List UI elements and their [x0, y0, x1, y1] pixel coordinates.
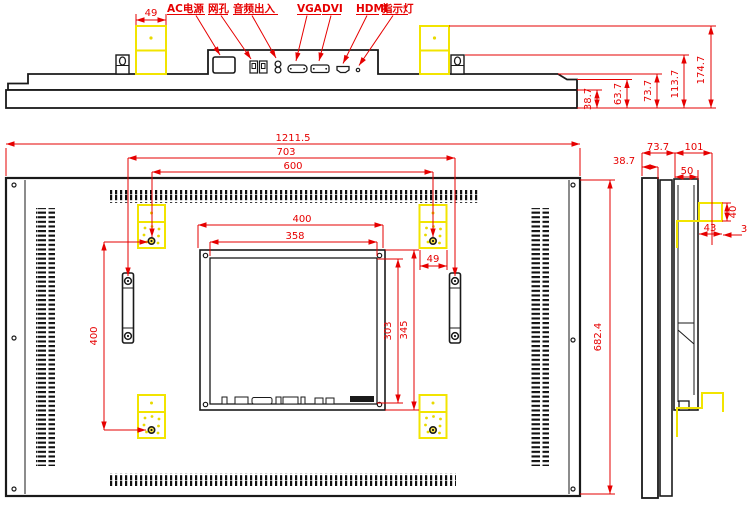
label-audio: 音频出入	[233, 2, 275, 15]
dim-side-hook: 43 40 3	[699, 203, 747, 235]
label-lan: 网孔	[208, 2, 229, 15]
dim-topview-bracket-width: 49	[136, 8, 166, 25]
svg-text:400: 400	[89, 326, 100, 345]
mount-bracket-top-view-left	[136, 26, 166, 74]
dim-hook-width: 43	[704, 223, 717, 234]
dim-hook-gap: 3	[741, 224, 747, 235]
svg-text:682.4: 682.4	[593, 323, 604, 352]
svg-text:49: 49	[145, 8, 158, 19]
dim-chassis-depth: 73.7	[643, 80, 654, 102]
dim-side-total-depth: 101	[684, 142, 703, 153]
mount-bracket-top-view-right	[420, 26, 449, 74]
dimension-drawing: AC电源 网孔 音频出入 VGA DVI HDMI 指示灯 49	[0, 0, 748, 509]
dim-overall-height: 682.4	[580, 180, 615, 494]
vga-port	[288, 65, 307, 73]
handle-right	[450, 273, 461, 343]
label-indicator: 指示灯	[382, 2, 414, 15]
top-view: AC电源 网孔 音频出入 VGA DVI HDMI 指示灯 49	[6, 2, 716, 110]
label-vga: VGA	[297, 3, 323, 15]
label-ac-power: AC电源	[167, 2, 204, 15]
side-front-bezel	[642, 178, 658, 498]
dim-bracket-depth: 174.7	[696, 56, 707, 85]
vent-strip-bottom	[108, 473, 456, 486]
hdmi-port	[337, 67, 349, 73]
drawing-canvas: AC电源 网孔 音频出入 VGA DVI HDMI 指示灯 49	[0, 0, 748, 509]
top-hook-left	[116, 55, 129, 74]
ac-power-inlet	[213, 57, 235, 73]
mount-plate	[200, 250, 385, 410]
svg-text:600: 600	[283, 161, 302, 172]
dim-hook-height: 40	[728, 206, 739, 219]
top-hook-right	[451, 55, 464, 74]
top-view-bezel-bar	[6, 90, 577, 108]
side-mid-panel	[660, 180, 672, 496]
rear-view: 1211.5 703 600 400 358 49	[6, 133, 615, 496]
indicator-led	[356, 68, 359, 71]
dim-side-bezel-depth: 38.7	[613, 156, 635, 167]
dim-hook-depth: 113.7	[670, 70, 681, 99]
vent-strip-top	[108, 190, 478, 203]
side-rear-box	[674, 179, 698, 410]
dim-side-box-depth: 50	[681, 166, 694, 177]
dim-bezel-depth: 38.7	[583, 88, 594, 110]
svg-text:49: 49	[427, 254, 440, 265]
vent-column-left	[36, 208, 55, 466]
dim-step-depth: 63.7	[613, 83, 624, 105]
svg-text:400: 400	[292, 214, 311, 225]
svg-text:345: 345	[399, 320, 410, 339]
svg-text:703: 703	[276, 147, 295, 158]
dvi-port	[311, 65, 329, 73]
vent-column-right	[531, 208, 549, 466]
svg-text:1211.5: 1211.5	[276, 133, 311, 144]
side-view: 73.7 101 38.7 50 43 40 3	[613, 142, 747, 498]
handle-left	[123, 273, 134, 343]
svg-text:358: 358	[285, 231, 304, 242]
label-dvi: DVI	[322, 3, 343, 15]
dim-side-chassis-depth: 73.7	[647, 142, 669, 153]
svg-text:303: 303	[383, 321, 394, 340]
